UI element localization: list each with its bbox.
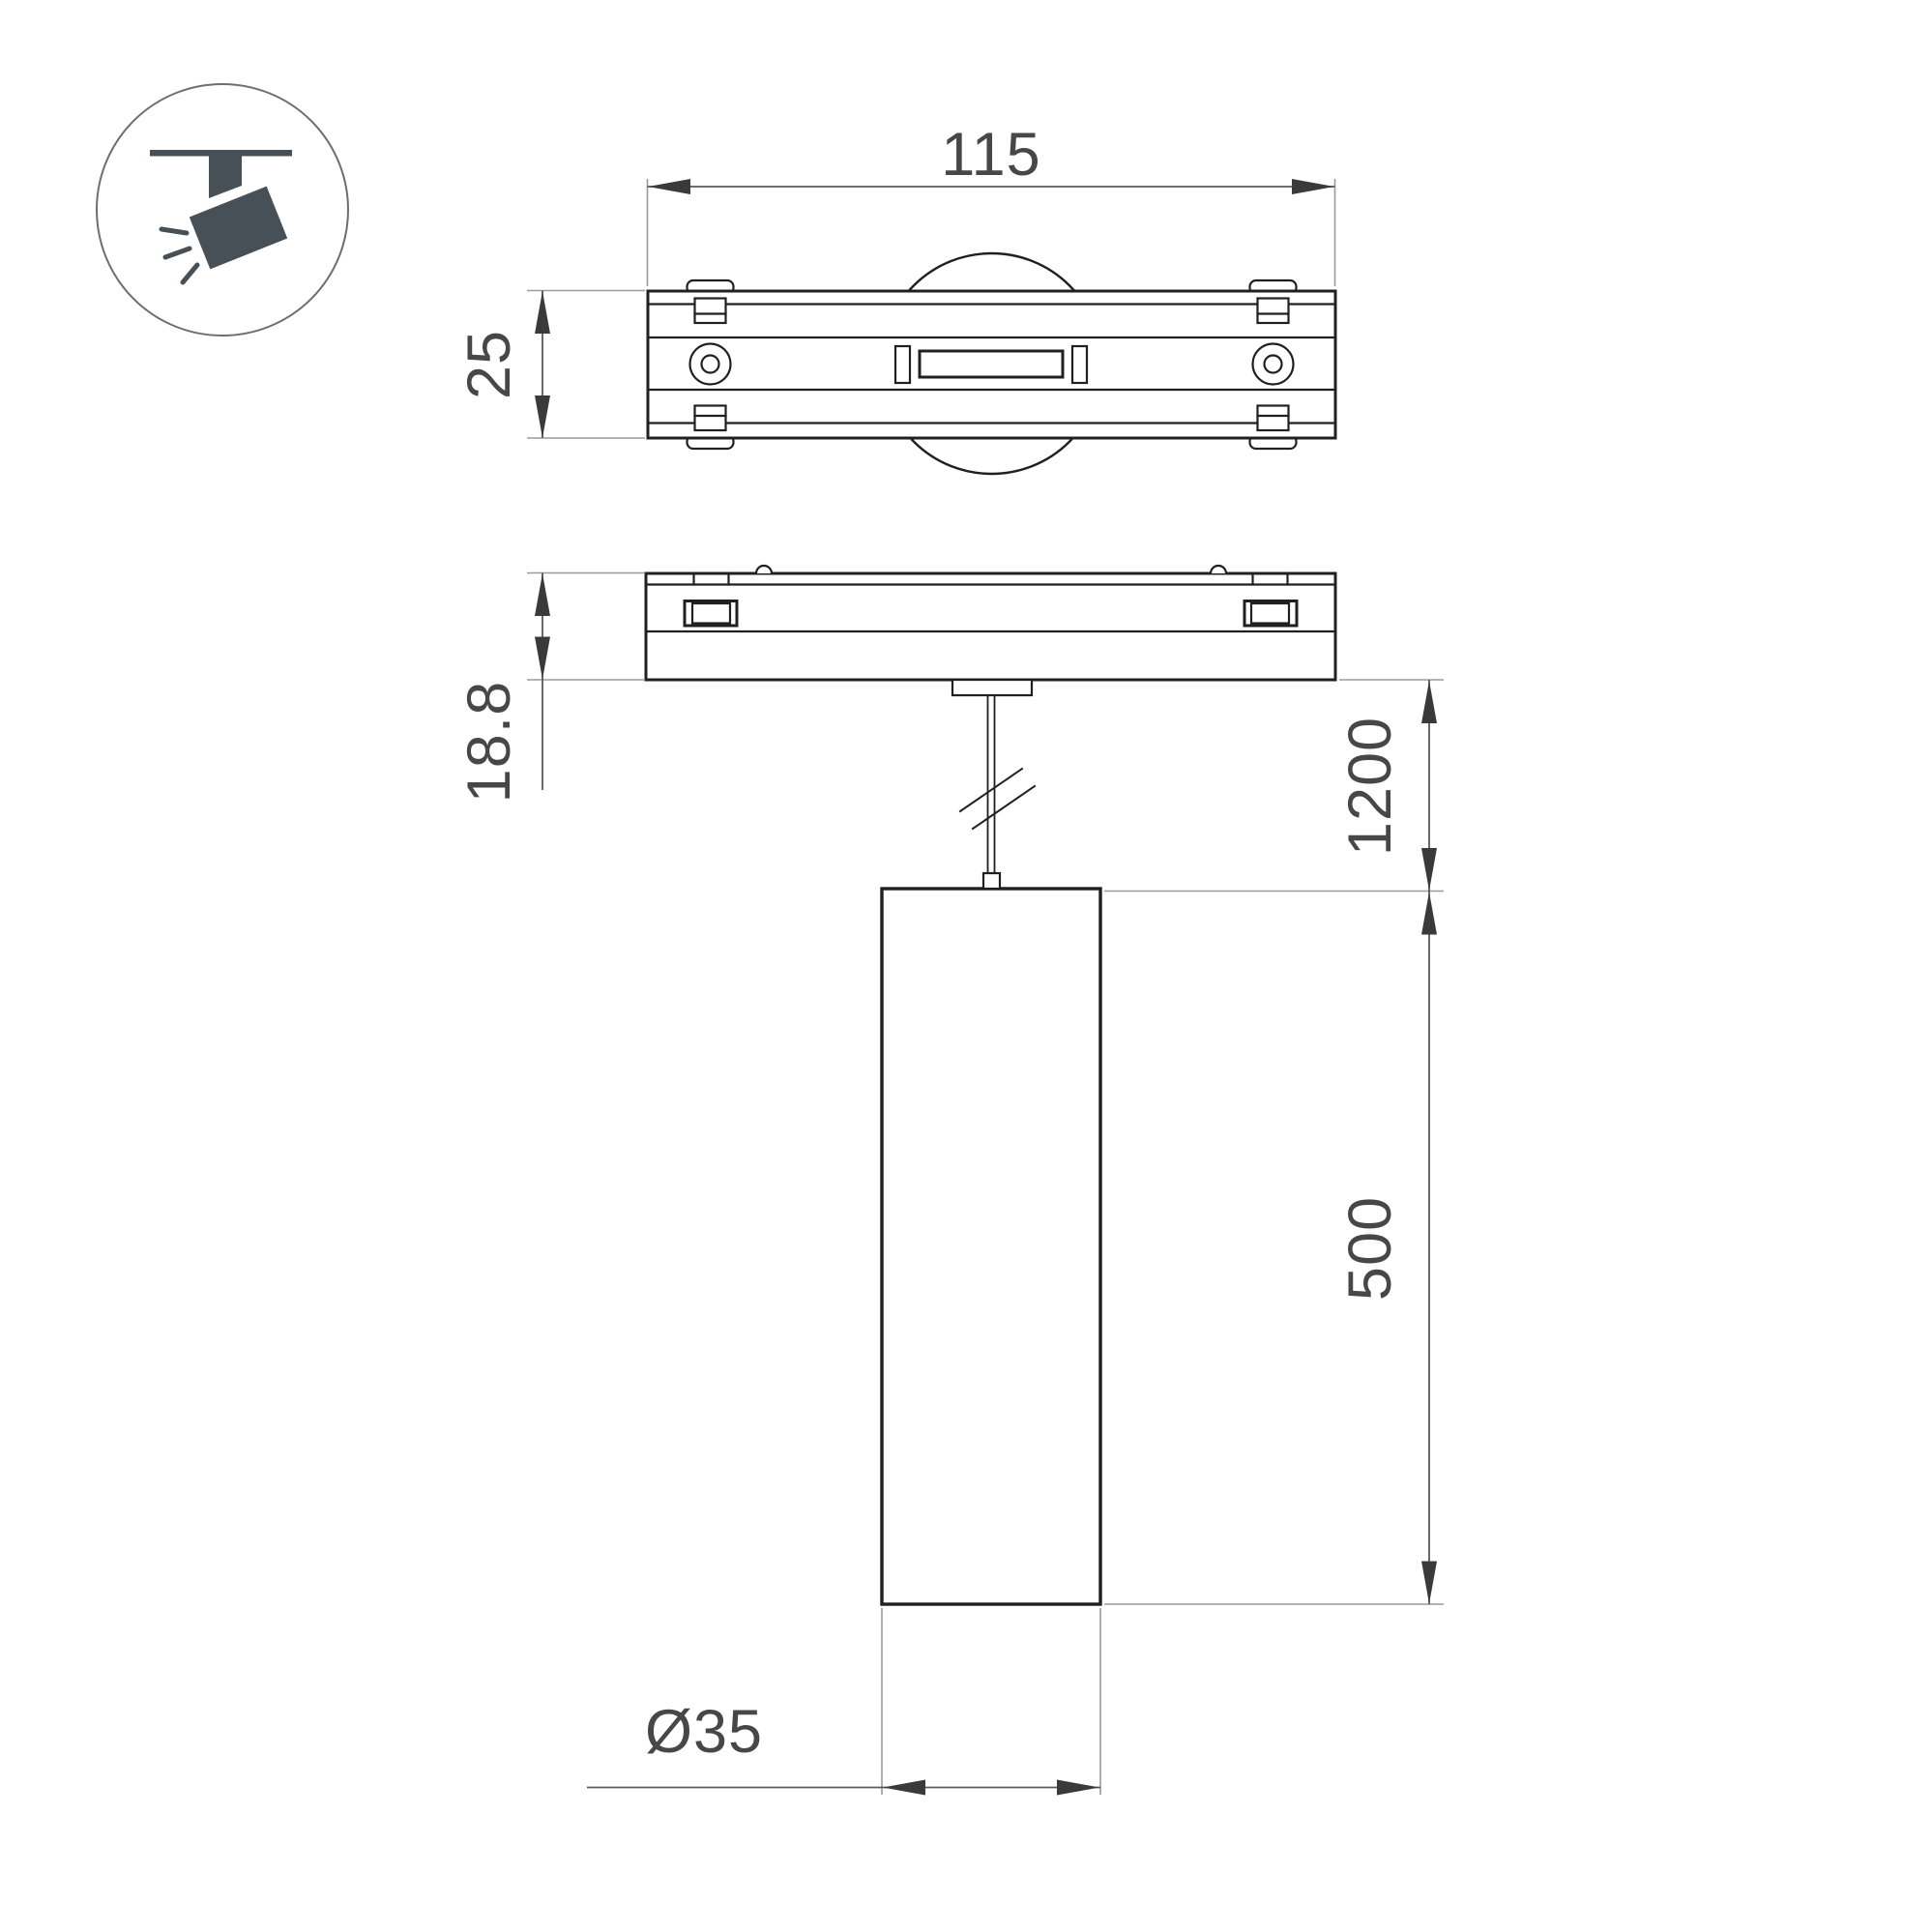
dim-label-track-width: 115	[941, 121, 1040, 189]
dimension-body-length: 500	[1104, 892, 1444, 1605]
spring-bump	[1211, 566, 1226, 573]
side-window-left	[685, 601, 737, 627]
pendant-assembly	[882, 695, 1100, 1604]
technical-drawing-page: 115 25	[0, 0, 1932, 1932]
dim-label-track-depth: 25	[455, 330, 523, 399]
dim-label-body-length: 500	[1336, 1196, 1404, 1301]
side-window-right	[1244, 601, 1297, 627]
dim-label-suspension-length: 1200	[1336, 717, 1404, 856]
suspension-plate	[952, 680, 1032, 695]
dimension-body-diameter: Ø35	[587, 1608, 1100, 1796]
screw-right	[1253, 344, 1294, 385]
top-view	[648, 253, 1335, 474]
wire-break-symbol	[960, 769, 1035, 829]
spring-bump	[756, 566, 772, 573]
side-view	[646, 566, 1335, 695]
dim-label-module-height: 18.8	[455, 681, 523, 804]
wire-grip	[983, 873, 1000, 889]
dimension-module-height: 18.8	[455, 573, 644, 804]
dimension-suspension-length: 1200	[1104, 680, 1444, 892]
dimension-track-depth: 25	[455, 291, 645, 439]
screw-left	[690, 344, 731, 385]
dimension-drawing: 115 25	[0, 0, 1932, 1932]
track-module-body-side	[646, 573, 1335, 680]
track-spotlight-icon	[97, 84, 348, 336]
dim-label-body-diameter: Ø35	[645, 1698, 763, 1766]
contact-assembly	[895, 346, 1087, 383]
lamp-cylinder	[882, 889, 1100, 1604]
